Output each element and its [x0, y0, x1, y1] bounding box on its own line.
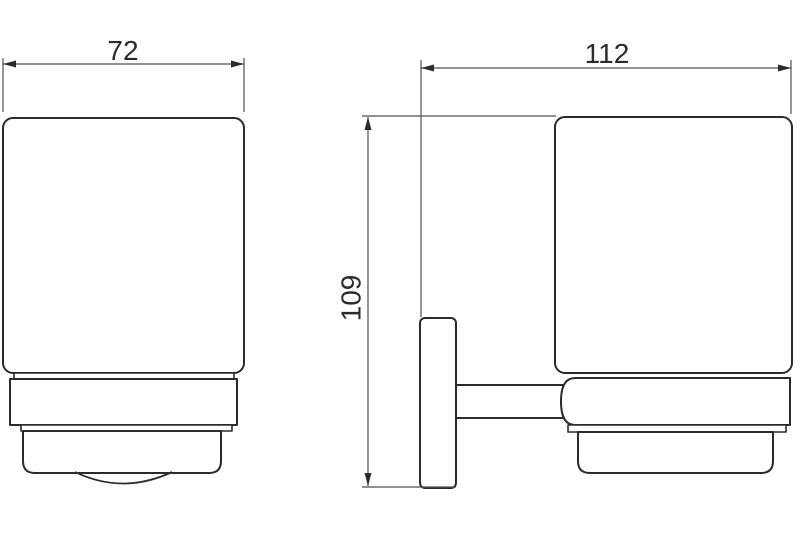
arrowhead-left-icon — [421, 65, 434, 72]
technical-drawing-canvas: 72 112 109 — [0, 0, 800, 533]
drawing-svg: 72 112 109 — [0, 0, 800, 533]
mounting-arm-side — [456, 385, 563, 418]
dimension-width-72: 72 — [3, 35, 244, 112]
arrowhead-right-icon — [778, 65, 791, 72]
arrowhead-down-icon — [365, 473, 372, 486]
dimension-value-depth: 112 — [585, 38, 630, 69]
front-view — [3, 118, 244, 484]
arrowhead-left-icon — [3, 61, 16, 68]
wall-plate-side — [420, 318, 456, 488]
holder-ring-side — [561, 378, 790, 425]
arrowhead-right-icon — [231, 61, 244, 68]
dimension-value-height: 109 — [336, 275, 367, 322]
cup-body-front — [3, 118, 244, 373]
dimension-value-width: 72 — [107, 35, 138, 66]
cup-lower-side — [578, 432, 773, 473]
side-view — [420, 117, 792, 488]
cup-lower-front — [23, 431, 221, 473]
ring-lip-side — [568, 425, 786, 432]
arrowhead-up-icon — [365, 117, 372, 130]
holder-ring-front — [10, 379, 237, 425]
cup-body-side — [555, 117, 792, 373]
